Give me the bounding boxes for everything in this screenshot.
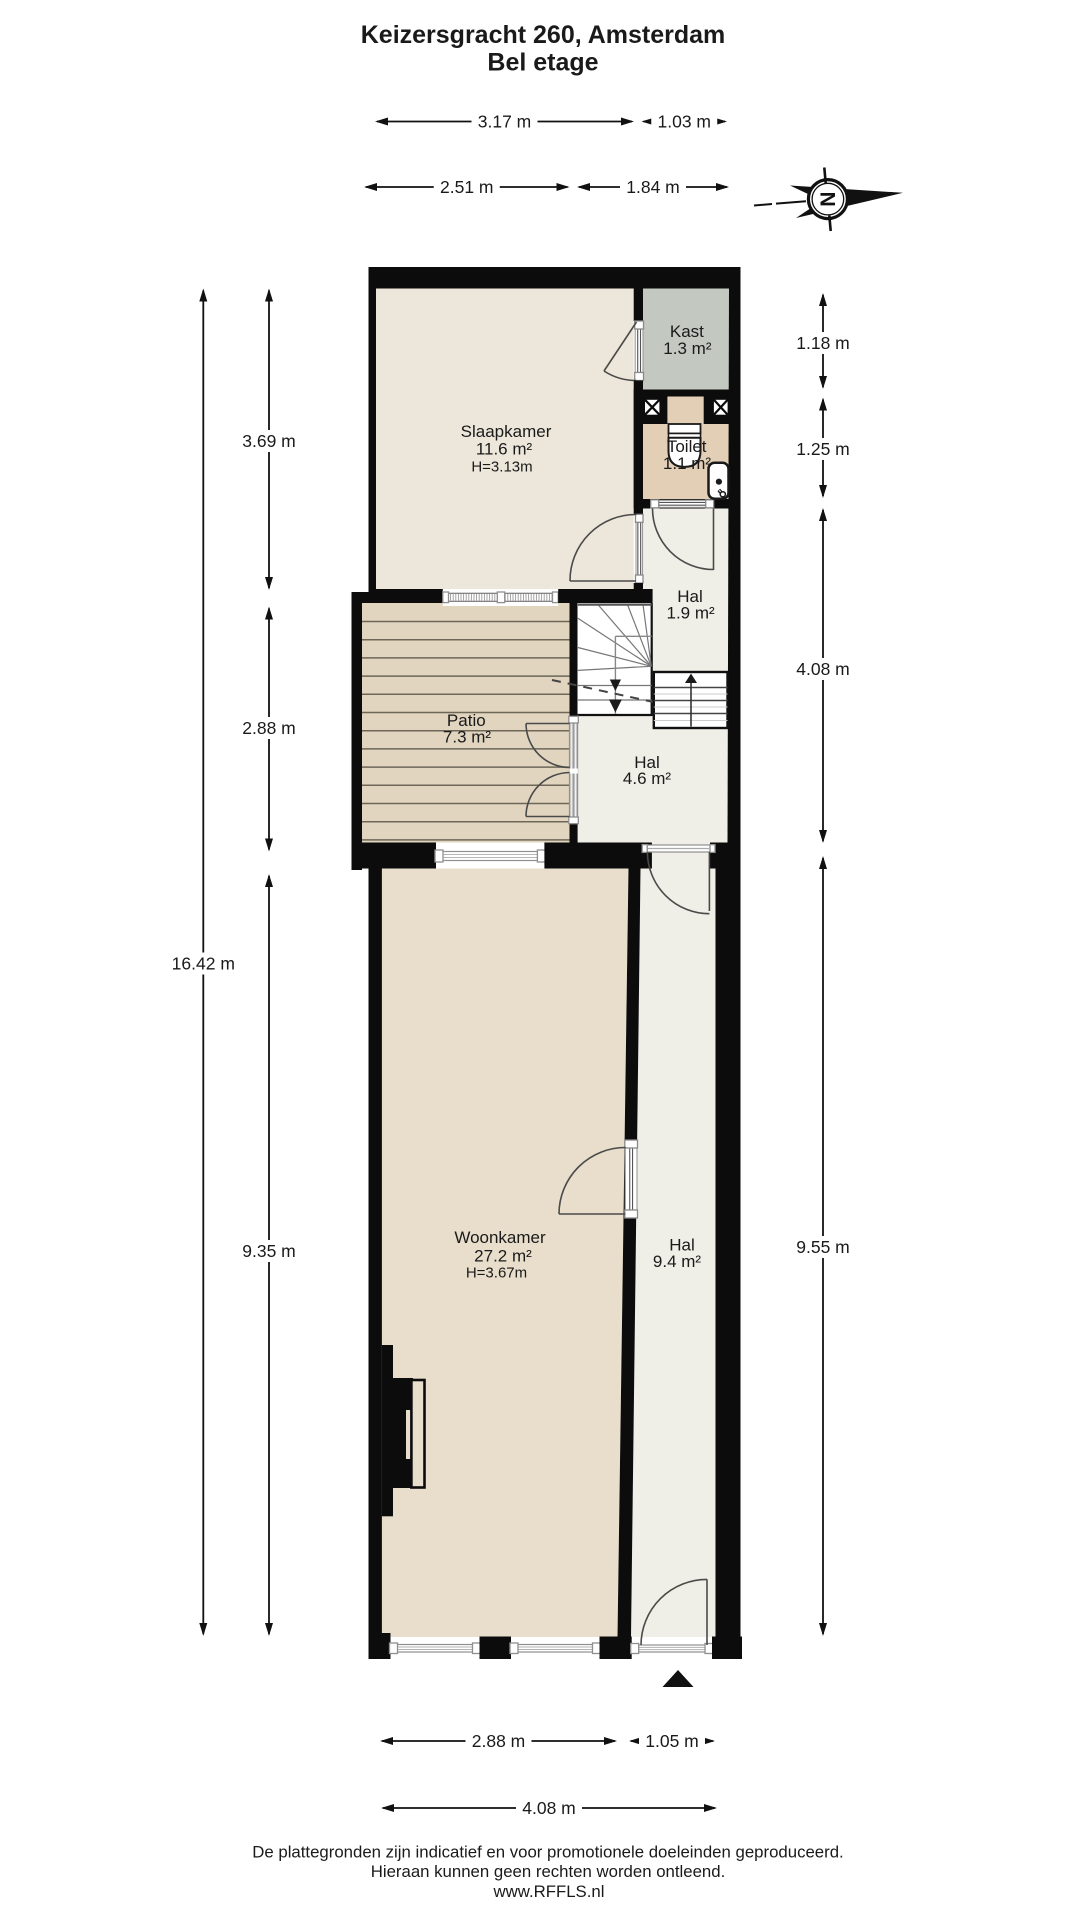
svg-text:Hieraan kunnen geen rechten wo: Hieraan kunnen geen rechten worden ontle… [371,1862,726,1881]
svg-text:2.88 m: 2.88 m [472,1731,526,1751]
svg-text:1.9 m²: 1.9 m² [667,604,716,623]
svg-text:1.03 m: 1.03 m [658,112,712,132]
svg-text:Slaapkamer: Slaapkamer [461,422,552,441]
svg-text:27.2 m²: 27.2 m² [474,1247,532,1266]
svg-text:1.05 m: 1.05 m [645,1731,699,1751]
svg-text:11.6 m²: 11.6 m² [476,440,533,459]
svg-text:7.3 m²: 7.3 m² [443,728,492,747]
svg-text:Woonkamer: Woonkamer [454,1228,546,1247]
svg-text:1.3 m²: 1.3 m² [663,339,712,358]
svg-text:www.RFFLS.nl: www.RFFLS.nl [493,1882,605,1901]
svg-text:16.42 m: 16.42 m [172,954,235,974]
svg-text:1.18 m: 1.18 m [796,333,850,353]
svg-text:Keizersgracht 260, Amsterdam: Keizersgracht 260, Amsterdam [361,21,726,49]
svg-text:De plattegronden zijn indicati: De plattegronden zijn indicatief en voor… [252,1843,843,1862]
svg-text:4.6 m²: 4.6 m² [623,769,672,788]
svg-text:2.88 m: 2.88 m [242,718,296,738]
svg-text:9.55 m: 9.55 m [796,1237,850,1257]
svg-text:4.08 m: 4.08 m [522,1798,576,1818]
svg-text:9.4 m²: 9.4 m² [653,1252,702,1271]
svg-text:3.17 m: 3.17 m [478,112,532,132]
svg-text:1.1 m²: 1.1 m² [663,454,712,473]
svg-text:4.08 m: 4.08 m [796,659,850,679]
svg-text:H=3.67m: H=3.67m [466,1265,527,1282]
svg-text:N: N [817,192,840,207]
svg-text:Bel etage: Bel etage [487,49,598,77]
svg-text:3.69 m: 3.69 m [242,431,296,451]
svg-text:9.35 m: 9.35 m [242,1241,296,1261]
svg-text:H=3.13m: H=3.13m [471,459,532,476]
svg-text:2.51 m: 2.51 m [440,177,494,197]
svg-text:1.25 m: 1.25 m [796,439,850,459]
svg-text:1.84 m: 1.84 m [626,177,680,197]
